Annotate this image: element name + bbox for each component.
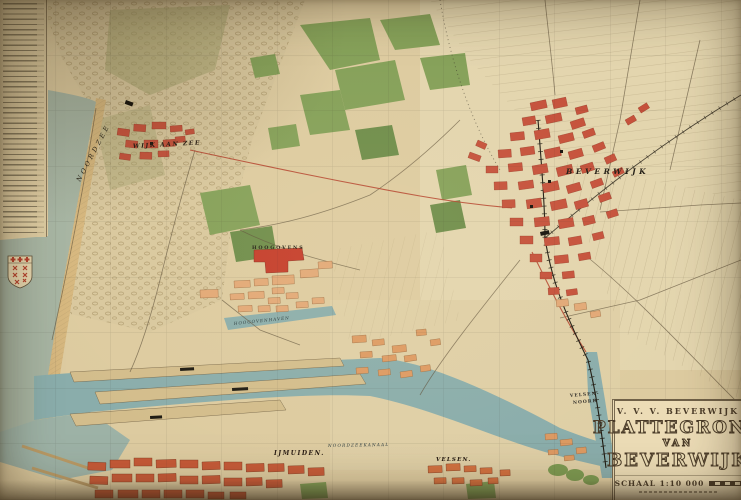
- label-beverwijk: BEVERWIJK: [565, 167, 649, 176]
- cartouche-city: BEVERWIJK: [607, 450, 741, 471]
- cartouche-title: PLATTEGROND: [593, 418, 741, 438]
- scale-bar: [709, 481, 741, 486]
- title-cartouche: V. V. V. BEVERWIJK PLATTEGROND VAN BEVER…: [612, 399, 741, 500]
- cartouche-connector: VAN: [663, 439, 694, 449]
- scale-row: SCHAAL 1:10 000: [615, 475, 741, 488]
- label-hoogovens: HOOGOVENS: [252, 245, 305, 251]
- label-velsen: VELSEN.: [436, 457, 471, 463]
- street-index: [0, 0, 47, 237]
- imprint-line: [639, 491, 717, 493]
- map-sheet-photo: NOORDZEE WIJK AAN ZEE BEVERWIJK HOOGOVEN…: [0, 0, 741, 500]
- scale-text: SCHAAL 1:10 000: [615, 479, 705, 488]
- label-ijmuiden: IJMUIDEN.: [273, 450, 325, 457]
- street-index-entries: [3, 3, 44, 237]
- coat-of-arms: [8, 256, 32, 288]
- cartouche-org: V. V. V. BEVERWIJK: [617, 406, 739, 416]
